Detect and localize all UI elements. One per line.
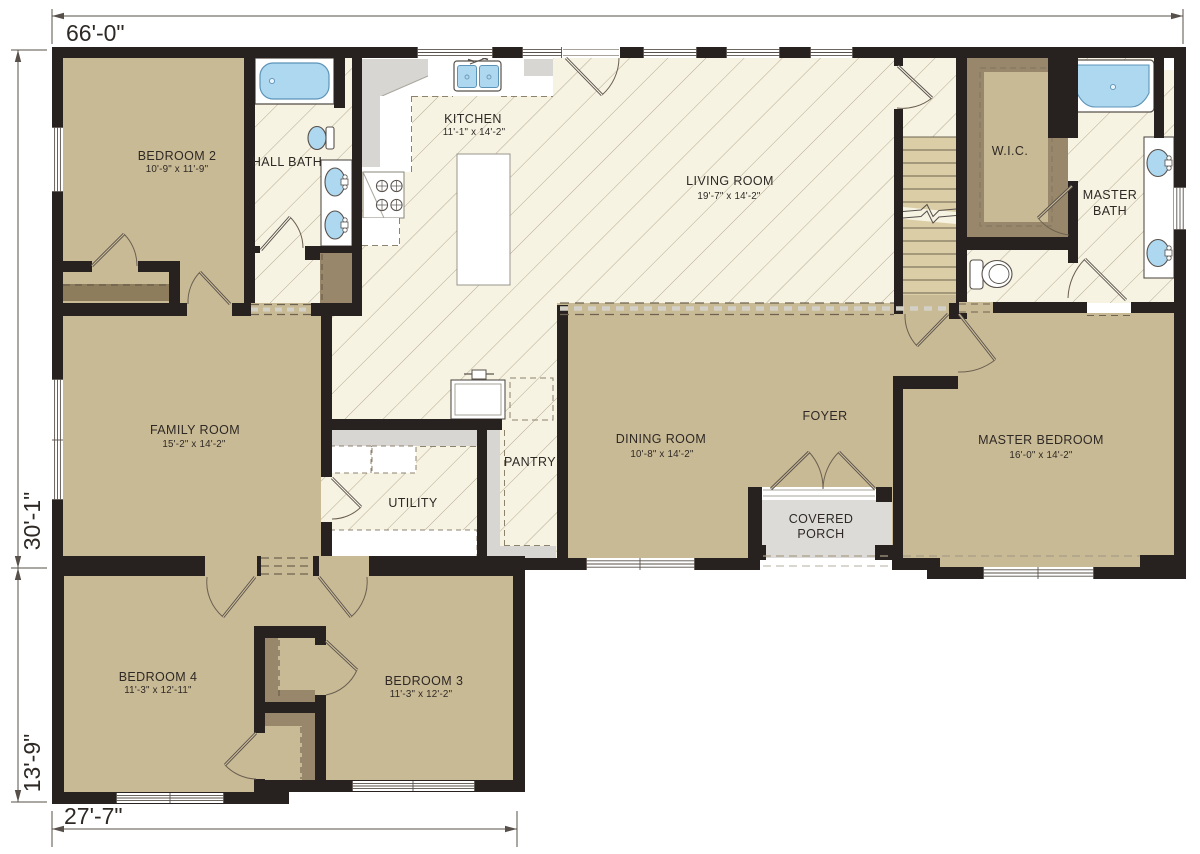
svg-text:W.I.C.: W.I.C. xyxy=(992,144,1028,158)
svg-text:MASTER: MASTER xyxy=(1083,188,1138,202)
svg-text:11'-1" x 14'-2": 11'-1" x 14'-2" xyxy=(443,127,506,138)
svg-text:MASTER BEDROOM: MASTER BEDROOM xyxy=(978,433,1104,447)
svg-text:DINING ROOM: DINING ROOM xyxy=(616,432,707,446)
svg-text:10'-8" x 14'-2": 10'-8" x 14'-2" xyxy=(630,449,694,460)
svg-text:13'-9": 13'-9" xyxy=(19,734,45,793)
svg-text:KITCHEN: KITCHEN xyxy=(444,112,502,126)
svg-text:COVERED: COVERED xyxy=(789,512,854,526)
svg-text:BEDROOM 2: BEDROOM 2 xyxy=(138,149,217,163)
svg-text:15'-2" x 14'-2": 15'-2" x 14'-2" xyxy=(162,439,226,450)
svg-text:FOYER: FOYER xyxy=(802,409,847,423)
svg-text:LIVING ROOM: LIVING ROOM xyxy=(686,174,774,188)
svg-text:UTILITY: UTILITY xyxy=(388,496,438,510)
svg-text:HALL BATH: HALL BATH xyxy=(252,155,322,169)
svg-text:19'-7" x 14'-2": 19'-7" x 14'-2" xyxy=(697,191,761,202)
svg-text:BEDROOM 4: BEDROOM 4 xyxy=(119,670,198,684)
svg-text:10'-9" x 11'-9": 10'-9" x 11'-9" xyxy=(146,164,209,175)
svg-text:27'-7": 27'-7" xyxy=(64,803,123,829)
svg-text:PANTRY: PANTRY xyxy=(504,455,556,469)
svg-text:30'-1": 30'-1" xyxy=(19,492,45,551)
svg-text:BATH: BATH xyxy=(1093,204,1127,218)
svg-text:16'-0" x 14'-2": 16'-0" x 14'-2" xyxy=(1009,450,1073,461)
svg-text:BEDROOM 3: BEDROOM 3 xyxy=(385,674,464,688)
svg-text:66'-0": 66'-0" xyxy=(66,20,125,46)
svg-text:11'-3" x 12'-2": 11'-3" x 12'-2" xyxy=(390,689,453,700)
svg-text:FAMILY ROOM: FAMILY ROOM xyxy=(150,423,240,437)
svg-text:11'-3" x 12'-11": 11'-3" x 12'-11" xyxy=(124,685,192,696)
svg-text:PORCH: PORCH xyxy=(797,527,844,541)
